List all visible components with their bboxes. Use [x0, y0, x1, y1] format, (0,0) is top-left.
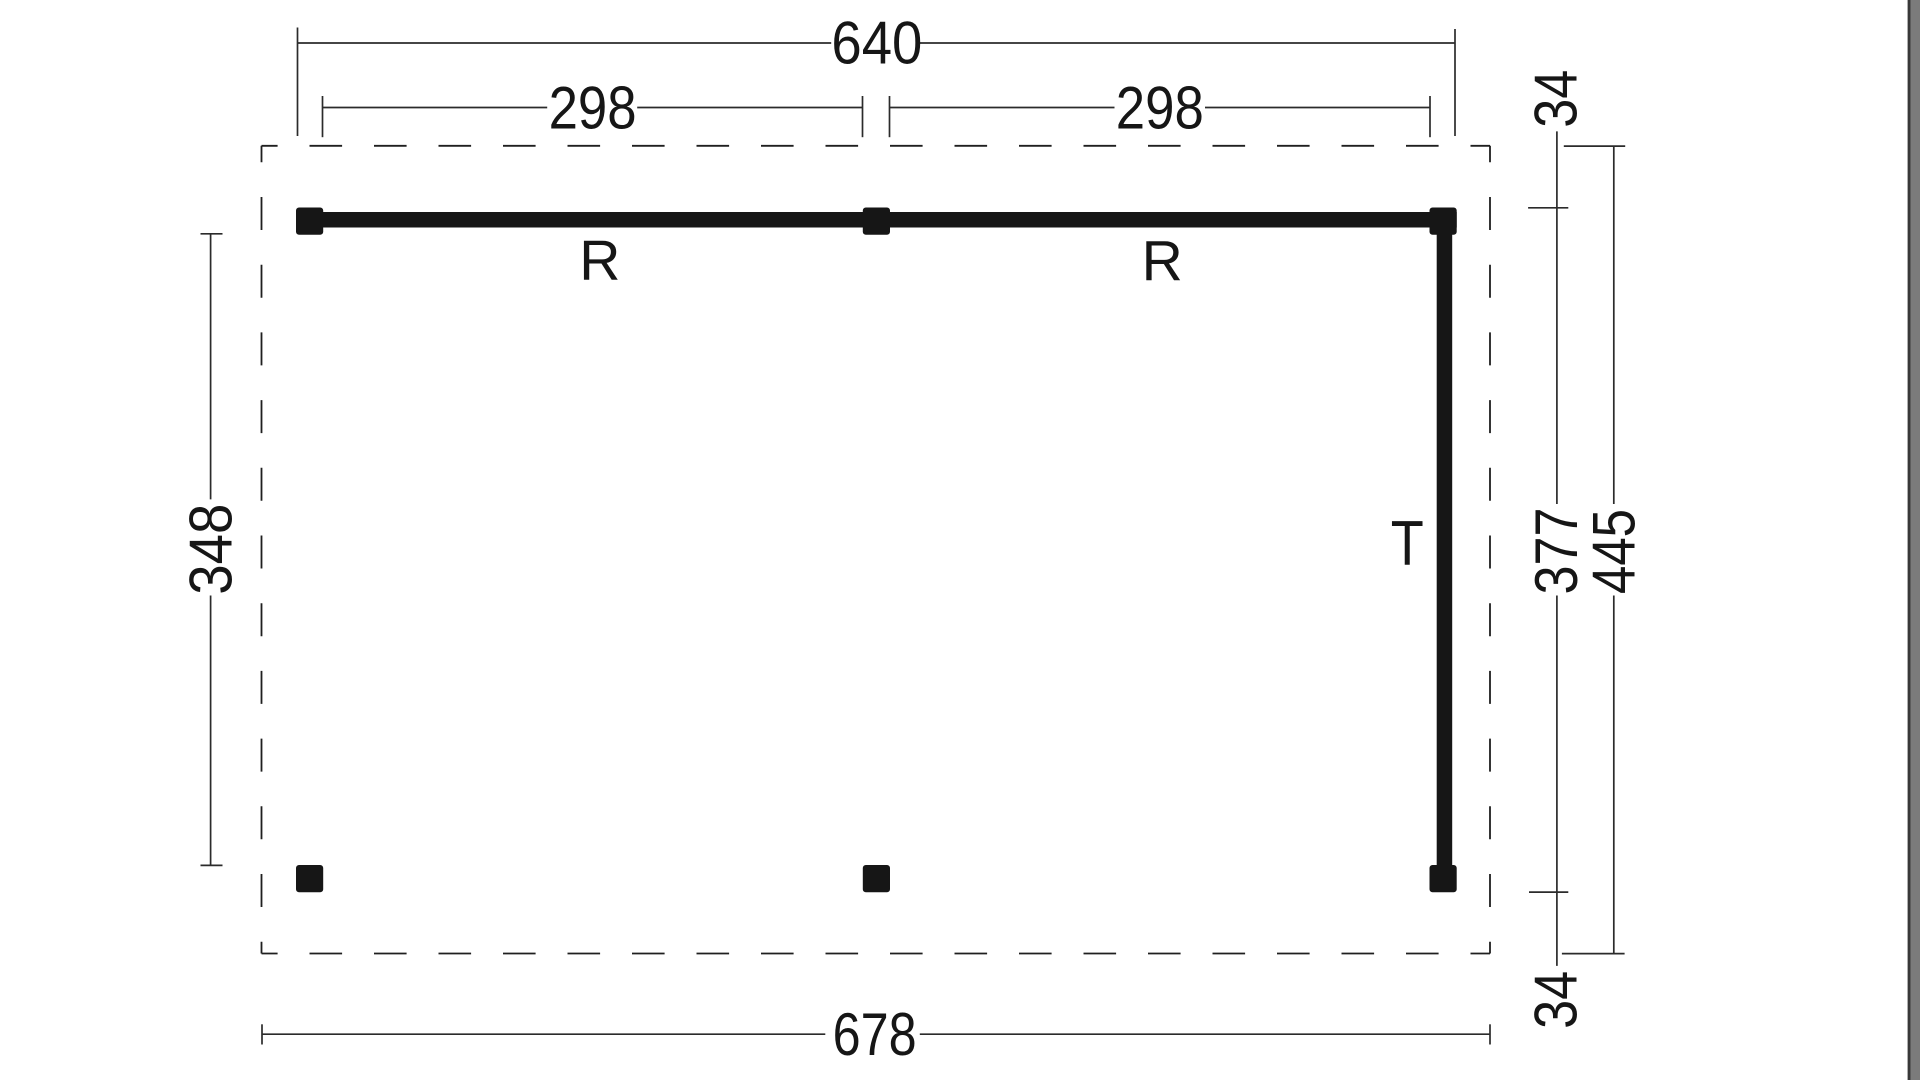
svg-text:298: 298 — [549, 74, 637, 141]
svg-text:34: 34 — [1523, 70, 1590, 128]
svg-text:T: T — [1391, 508, 1424, 578]
svg-text:445: 445 — [1581, 509, 1648, 594]
svg-text:348: 348 — [177, 504, 244, 595]
svg-text:640: 640 — [831, 10, 922, 77]
svg-text:34: 34 — [1523, 971, 1590, 1029]
svg-text:298: 298 — [1116, 74, 1204, 141]
svg-text:R: R — [1142, 229, 1183, 293]
svg-text:678: 678 — [833, 1001, 917, 1068]
svg-text:R: R — [579, 229, 620, 293]
